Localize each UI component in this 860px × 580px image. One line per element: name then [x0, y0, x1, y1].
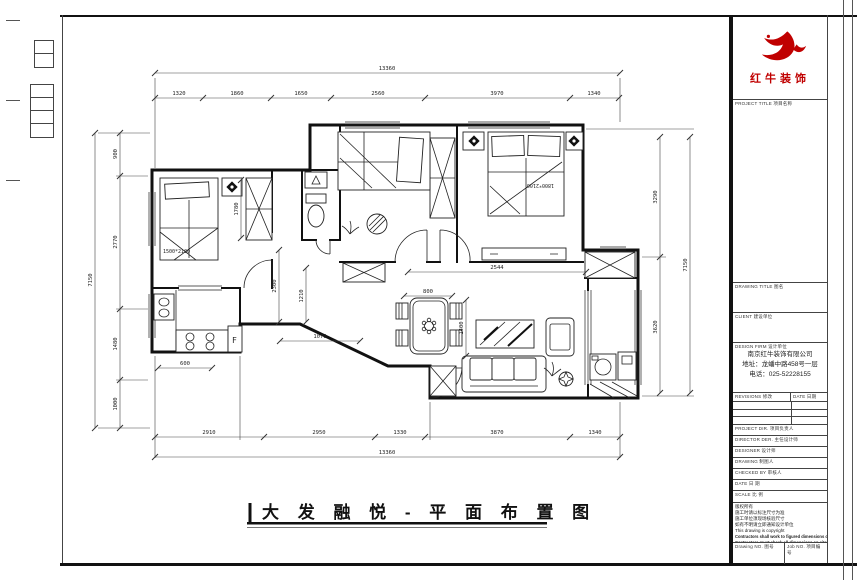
svg-text:2770: 2770: [113, 235, 119, 248]
fridge-label: F: [232, 336, 237, 345]
svg-text:1000: 1000: [113, 397, 119, 410]
svg-text:2560: 2560: [371, 91, 384, 97]
project-dir-label: PROJECT DIR. 项目负责人: [735, 426, 794, 431]
plan-title-text: 大 发 融 悦 - 平 面 布 置 图: [262, 502, 596, 522]
plant-living: [544, 362, 561, 376]
svg-text:1210: 1210: [299, 289, 305, 302]
wardrobe-bedroom1: [246, 178, 272, 240]
checked-by-cell: CHECKED BY 审核人: [733, 469, 827, 480]
notes-cell: 版权所有 施工时请以标注尺寸为准 施工单位须现场核验尺寸 如有不明请立即通知设计…: [733, 503, 827, 543]
washing-machine: [590, 354, 616, 380]
design-firm-label: DESIGN FIRM 设计单位: [735, 344, 787, 349]
svg-text:800: 800: [423, 289, 433, 295]
bed1-size-label: 1500*2100: [163, 249, 190, 255]
client-label: CLIENT 建设单位: [735, 314, 772, 319]
rug: [476, 320, 534, 348]
svg-text:2950: 2950: [312, 430, 325, 436]
svg-text:13360: 13360: [379, 66, 396, 72]
svg-text:2910: 2910: [202, 430, 215, 436]
revisions-label: REVISIONS 修改: [733, 393, 791, 401]
bed2-size-label: 1800*2100: [527, 182, 554, 188]
bed-double-master: [488, 132, 564, 216]
scale-label: SCALE 比 例: [735, 492, 763, 497]
balcony-cabinet: [618, 352, 636, 380]
revision-row: [733, 402, 827, 410]
door-bathroom: [316, 240, 330, 254]
dim-left-total: 7150: [88, 130, 150, 431]
dim-right-total: 7150: [683, 134, 693, 396]
svg-text:13360: 13360: [379, 450, 396, 456]
door-master: [440, 230, 470, 262]
svg-text:900: 900: [113, 149, 119, 159]
entry-shaft-box: [430, 366, 456, 396]
svg-text:2544: 2544: [490, 265, 504, 271]
tv-cabinet-master: [482, 248, 566, 260]
checked-by-label: CHECKED BY 审核人: [735, 470, 782, 475]
svg-text:2300: 2300: [272, 279, 278, 292]
balcony-floor-hatch: [590, 382, 637, 398]
plant-small: [342, 221, 359, 234]
svg-text:1340: 1340: [587, 91, 600, 97]
svg-text:1070: 1070: [313, 334, 326, 340]
door-bedroom1: [244, 260, 272, 288]
designer-cell: DESIGNER 设计师: [733, 447, 827, 458]
svg-text:7150: 7150: [683, 258, 689, 271]
svg-text:1340: 1340: [588, 430, 601, 436]
wardrobe-bedroom2: [430, 138, 455, 218]
firm-phone: 电话：025-52228155: [735, 370, 825, 380]
svg-text:1480: 1480: [113, 337, 119, 350]
bed-single-mid: [338, 132, 430, 190]
project-title-cell: PROJECT TITLE 项目名称: [733, 100, 827, 283]
dim-bottom-total: 13360: [152, 450, 623, 460]
drawing-by-cell: DRAWING 制图人: [733, 458, 827, 469]
svg-text:1650: 1650: [294, 91, 307, 97]
drawing-no-label: Drawing NO. 图号: [733, 543, 785, 564]
toilet: [306, 194, 326, 227]
designer-label: DESIGNER 设计师: [735, 448, 776, 453]
svg-text:1400: 1400: [459, 321, 465, 334]
dim-top-segments: 1320 1860 1650 2560 3970 1340: [152, 91, 622, 101]
director-cell: DIRECTOR DER. 主任设计师: [733, 436, 827, 447]
date-label: DATE 日 期: [735, 481, 760, 486]
sheet-edge-line-1: [843, 0, 844, 580]
svg-text:7150: 7150: [88, 273, 94, 286]
drawing-by-label: DRAWING 制图人: [735, 459, 774, 464]
scale-cell: SCALE 比 例: [733, 491, 827, 503]
armchair: [546, 318, 574, 356]
logo-cell: 红牛装饰: [733, 15, 827, 100]
dim-bottom-segments: 2910 2950 1330 3870 1340: [152, 356, 623, 458]
project-dir-cell: PROJECT DIR. 项目负责人: [733, 425, 827, 436]
door-bedroom2: [395, 230, 427, 262]
title-block: 红牛装饰 PROJECT TITLE 项目名称 DRAWING TITLE 图名…: [733, 15, 827, 563]
revisions-cell: REVISIONS 修改 DATE 日期: [733, 393, 827, 425]
project-title-label: PROJECT TITLE 项目名称: [735, 101, 792, 106]
drawing-title-cell: DRAWING TITLE 图名: [733, 283, 827, 313]
window-bedroom2: [345, 122, 400, 128]
director-label: DIRECTOR DER. 主任设计师: [735, 437, 798, 442]
titleblock-right-edge: [827, 15, 828, 563]
svg-text:3870: 3870: [490, 430, 503, 436]
drawing-title-label: DRAWING TITLE 图名: [735, 284, 783, 289]
brand-name: 红牛装饰: [750, 70, 810, 86]
svg-text:1780: 1780: [234, 202, 240, 215]
stove: [176, 330, 228, 352]
client-cell: CLIENT 建设单位: [733, 313, 827, 343]
dining-table: [410, 298, 448, 354]
sheet-edge-line-2: [852, 0, 853, 580]
svg-text:1330: 1330: [393, 430, 406, 436]
revision-row: [733, 417, 827, 424]
bed-single-left: [160, 178, 218, 260]
dim-left-segments: 900 2770 1480 1000: [113, 130, 148, 431]
washbasin: [305, 172, 327, 188]
sofa: [462, 356, 546, 392]
bull-logo-icon: [751, 28, 809, 68]
floor-plan-canvas: F: [0, 0, 730, 580]
plan-title: 大 发 融 悦 - 平 面 布 置 图: [247, 502, 596, 528]
revision-row: [733, 410, 827, 418]
firm-address: 地址：龙蟠中路458号一层: [735, 360, 825, 370]
revisions-date-label: DATE 日期: [791, 393, 827, 401]
svg-text:3970: 3970: [490, 91, 503, 97]
svg-text:600: 600: [180, 361, 190, 367]
corridor-beam-box: [343, 263, 385, 282]
floor-lamp-compass: [559, 372, 573, 386]
drawing-no-cell: Drawing NO. 图号 Job NO. 项目编号: [733, 543, 827, 564]
fridge: F: [228, 326, 242, 352]
design-firm-cell: DESIGN FIRM 设计单位 南京红牛装饰有限公司 地址：龙蟠中路458号一…: [733, 343, 827, 393]
firm-name: 南京红牛装饰有限公司: [735, 350, 825, 360]
svg-text:1860: 1860: [230, 91, 243, 97]
ac-platform-box: [585, 252, 635, 278]
stool: [367, 214, 387, 234]
svg-text:3620: 3620: [653, 320, 659, 333]
svg-text:1320: 1320: [172, 91, 185, 97]
window-master: [468, 122, 550, 128]
job-no-label: Job NO. 项目编号: [785, 543, 827, 564]
svg-text:3290: 3290: [653, 190, 659, 203]
window-bedroom1: [149, 192, 155, 246]
date-cell: DATE 日 期: [733, 480, 827, 491]
kitchen-sink: [154, 294, 174, 320]
